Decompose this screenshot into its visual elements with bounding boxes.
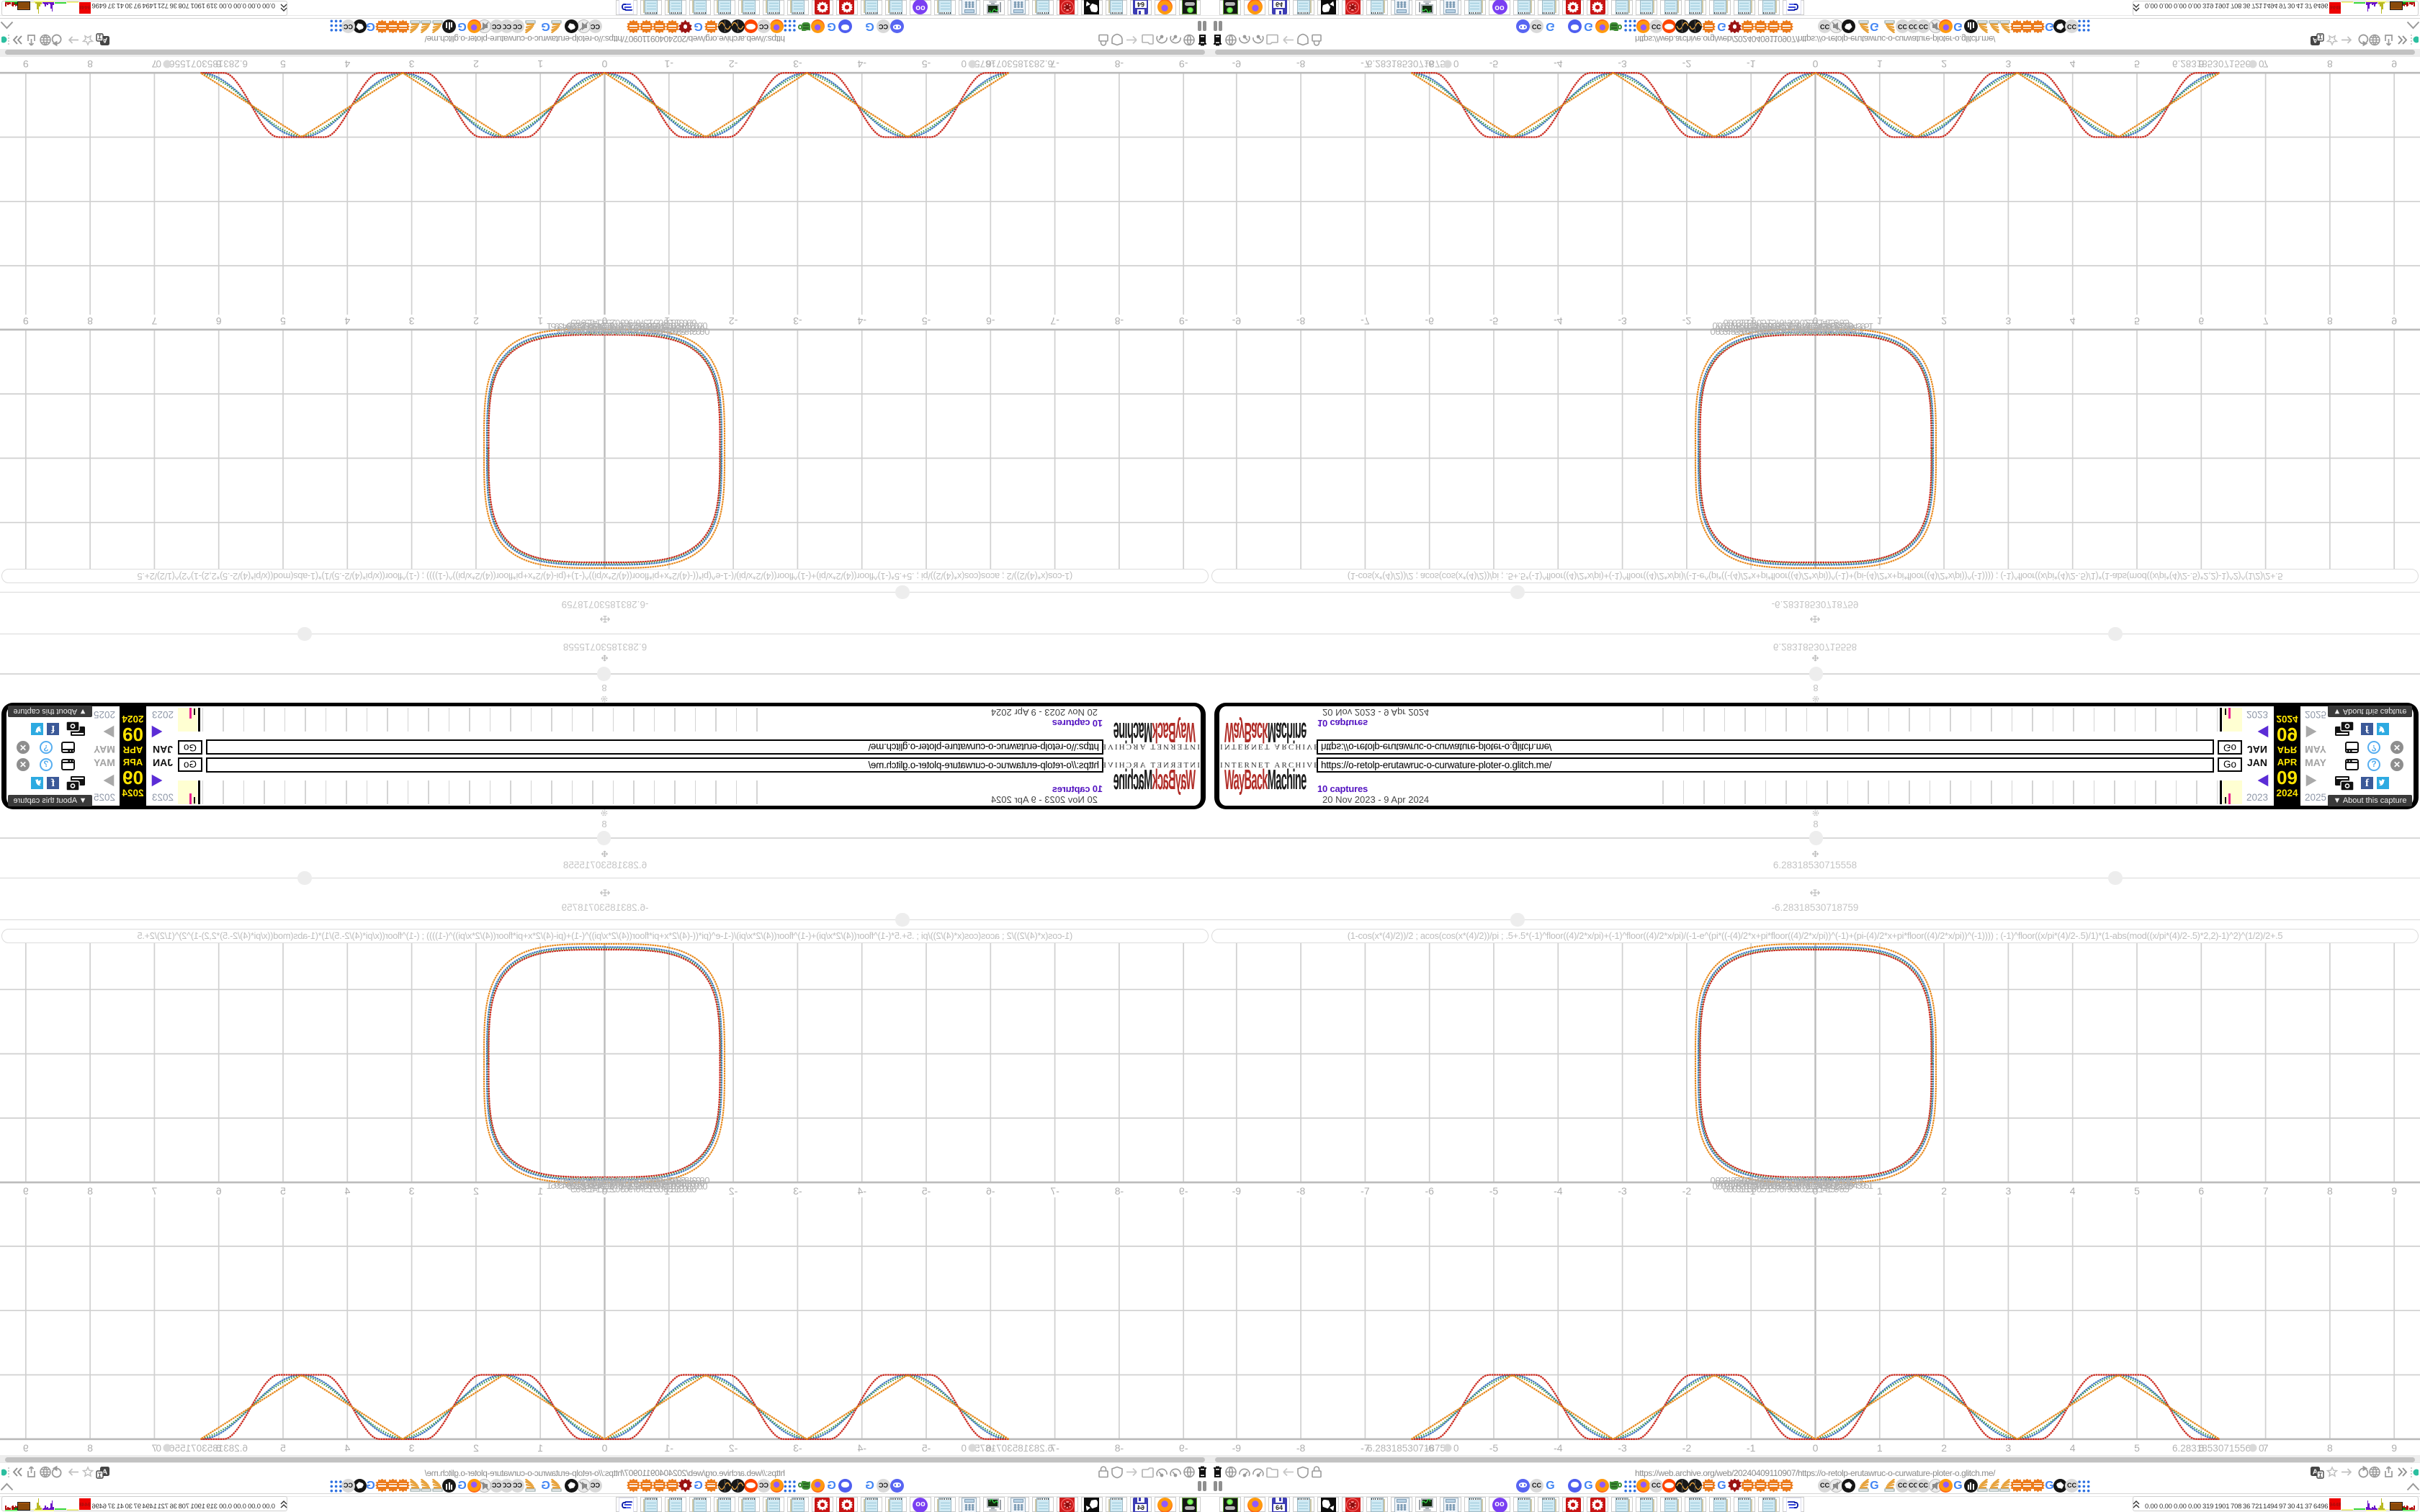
svg-text:5: 5 [2134,315,2140,327]
svg-text:5: 5 [280,1185,286,1197]
svg-text:5: 5 [2134,1442,2140,1454]
svg-text:-3: -3 [793,1185,802,1197]
svg-text:1: 1 [1877,1442,1883,1454]
svg-text:-8: -8 [1296,315,1306,327]
svg-text:-6: -6 [986,1185,995,1197]
svg-text:1: 1 [537,315,543,327]
svg-text:-4: -4 [857,1442,866,1454]
svg-text:3: 3 [408,1185,414,1197]
svg-text:9: 9 [2391,1185,2397,1197]
svg-text:0: 0 [156,1443,161,1454]
svg-text:3: 3 [2006,58,2012,70]
svg-text:0: 0 [1453,1443,1459,1454]
svg-text:-9: -9 [1179,1185,1188,1197]
svg-text:1: 1 [537,1442,543,1454]
svg-text:-4: -4 [1554,58,1563,70]
svg-text:8: 8 [87,315,93,327]
svg-text:0: 0 [601,1442,607,1454]
svg-text:0: 0 [961,1443,967,1454]
svg-text:-9: -9 [1179,58,1188,70]
svg-text:-7: -7 [1050,1185,1059,1197]
svg-text:-8: -8 [1114,315,1124,327]
svg-text:6.28318530715560: 6.28318530715560 [2172,1443,2256,1454]
svg-text:0: 0 [601,58,607,70]
svg-text:-9: -9 [1179,1442,1188,1454]
svg-text:7: 7 [151,315,157,327]
svg-text:-5: -5 [922,58,931,70]
svg-text:-9: -9 [1232,1185,1242,1197]
svg-text:2: 2 [1941,58,1947,70]
svg-text:-4: -4 [857,315,866,327]
svg-text:-3: -3 [1618,58,1627,70]
svg-text:4: 4 [2070,315,2076,327]
svg-text:-4: -4 [1554,1442,1563,1454]
svg-text:9: 9 [2391,315,2397,327]
svg-text:0: 0 [156,58,161,69]
svg-text:1: 1 [537,1185,543,1197]
svg-text:8: 8 [2327,315,2333,327]
svg-text:-1: -1 [1747,1442,1756,1454]
svg-text:1: 1 [537,58,543,70]
svg-text:0: 0 [2259,58,2264,69]
svg-text:3: 3 [2006,1442,2012,1454]
svg-text:-4: -4 [857,58,866,70]
svg-text:6.28318530718759: 6.28318530718759 [969,58,1053,69]
svg-text:5: 5 [2134,1185,2140,1197]
svg-text:-8: -8 [1296,58,1306,70]
svg-text:9: 9 [23,1442,29,1454]
svg-text:2: 2 [1941,1185,1947,1197]
svg-text:8: 8 [2327,1442,2333,1454]
svg-text:6.28318530718759: 6.28318530718759 [1367,1443,1451,1454]
svg-text:6.28318530718759: 6.28318530718759 [969,1443,1053,1454]
svg-text:3: 3 [2006,1185,2012,1197]
svg-text:-5: -5 [1489,58,1499,70]
svg-text:2: 2 [1941,1442,1947,1454]
svg-text:-2: -2 [729,58,738,70]
svg-text:0: 0 [2259,1443,2264,1454]
svg-text:-7: -7 [1361,1185,1370,1197]
svg-text:4: 4 [344,58,350,70]
svg-text:-9: -9 [1232,58,1242,70]
svg-text:6: 6 [2198,315,2204,327]
svg-text:1: 1 [1877,315,1883,327]
svg-text:-8: -8 [1114,1442,1124,1454]
svg-text:-2: -2 [729,1442,738,1454]
svg-text:-2: -2 [1682,58,1692,70]
svg-text:4: 4 [2070,1442,2076,1454]
svg-text:6.28318530715560: 6.28318530715560 [2172,58,2256,69]
svg-text:8: 8 [2327,1185,2333,1197]
svg-text:-5: -5 [922,315,931,327]
svg-text:7: 7 [151,1185,157,1197]
svg-text:0.003185307 1.79 58 0.523598 2: 0.003185307 1.79 58 0.523598 2.0943951 [1747,321,1873,332]
svg-text:7: 7 [2263,1185,2269,1197]
svg-text:-5: -5 [1489,315,1499,327]
svg-text:0.003185307 1.79 58 0.523598 2: 0.003185307 1.79 58 0.523598 2.0943951 [547,1180,673,1191]
svg-text:6.28318530715560: 6.28318530715560 [164,1443,248,1454]
svg-text:4: 4 [2070,1185,2076,1197]
svg-text:5: 5 [280,1442,286,1454]
svg-text:0: 0 [1453,58,1459,69]
svg-text:0.003185307 1.79 58 0.523598 2: 0.003185307 1.79 58 0.523598 2.0943951 [1747,1180,1873,1191]
svg-text:2: 2 [473,315,479,327]
svg-text:6.28318530718759: 6.28318530718759 [1367,58,1451,69]
svg-text:1: 1 [1877,58,1883,70]
svg-text:2: 2 [473,1185,479,1197]
svg-text:-2: -2 [729,1185,738,1197]
svg-text:-3: -3 [1618,1185,1627,1197]
svg-text:8: 8 [2327,58,2333,70]
svg-text:3: 3 [408,58,414,70]
svg-text:3: 3 [408,315,414,327]
svg-text:6: 6 [216,315,222,327]
svg-text:-5: -5 [922,1442,931,1454]
svg-text:2: 2 [1941,315,1947,327]
svg-text:9: 9 [2391,58,2397,70]
svg-text:2: 2 [473,1442,479,1454]
svg-text:-1: -1 [664,1442,673,1454]
svg-text:1: 1 [1877,1185,1883,1197]
svg-text:-4: -4 [857,1185,866,1197]
svg-text:6.28318530715560: 6.28318530715560 [164,58,248,69]
svg-text:9: 9 [2391,1442,2397,1454]
svg-text:-6: -6 [1425,315,1434,327]
svg-text:-7: -7 [1361,315,1370,327]
svg-text:-9: -9 [1232,1442,1242,1454]
svg-text:0: 0 [961,58,967,69]
svg-text:2: 2 [473,58,479,70]
svg-text:3: 3 [408,1442,414,1454]
svg-text:-3: -3 [793,58,802,70]
svg-text:4: 4 [344,1185,350,1197]
svg-text:-4: -4 [1554,1185,1563,1197]
svg-text:9: 9 [23,1185,29,1197]
svg-text:-2: -2 [1682,315,1692,327]
svg-text:3: 3 [2006,315,2012,327]
svg-text:-7: -7 [1050,315,1059,327]
svg-text:8: 8 [87,1185,93,1197]
svg-text:-5: -5 [922,1185,931,1197]
svg-text:-6: -6 [986,315,995,327]
svg-text:6: 6 [2198,1185,2204,1197]
svg-text:4: 4 [2070,58,2076,70]
svg-text:-8: -8 [1296,1185,1306,1197]
svg-text:-1: -1 [1747,58,1756,70]
svg-text:-6: -6 [1425,1185,1434,1197]
svg-text:5: 5 [2134,58,2140,70]
svg-text:9: 9 [23,315,29,327]
svg-text:-8: -8 [1296,1442,1306,1454]
svg-text:4: 4 [344,1442,350,1454]
svg-text:9: 9 [23,58,29,70]
svg-text:8: 8 [87,1442,93,1454]
svg-text:-1: -1 [664,58,673,70]
svg-text:4: 4 [344,315,350,327]
svg-text:-9: -9 [1179,315,1188,327]
svg-text:-3: -3 [1618,315,1627,327]
svg-text:-2: -2 [729,315,738,327]
svg-text:-5: -5 [1489,1185,1499,1197]
svg-text:8: 8 [87,58,93,70]
svg-text:7: 7 [2263,315,2269,327]
svg-text:-2: -2 [1682,1185,1692,1197]
svg-text:5: 5 [280,58,286,70]
svg-text:-8: -8 [1114,58,1124,70]
svg-text:-5: -5 [1489,1442,1499,1454]
svg-text:-2: -2 [1682,1442,1692,1454]
svg-text:5: 5 [280,315,286,327]
svg-text:-3: -3 [793,1442,802,1454]
svg-text:-3: -3 [1618,1442,1627,1454]
svg-text:0: 0 [1813,58,1819,70]
svg-text:0: 0 [1813,1442,1819,1454]
svg-text:-4: -4 [1554,315,1563,327]
svg-text:0.003185307 1.79 58 0.523598 2: 0.003185307 1.79 58 0.523598 2.0943951 [547,321,673,332]
svg-text:-9: -9 [1232,315,1242,327]
svg-text:-3: -3 [793,315,802,327]
svg-text:6: 6 [216,1185,222,1197]
svg-text:-8: -8 [1114,1185,1124,1197]
